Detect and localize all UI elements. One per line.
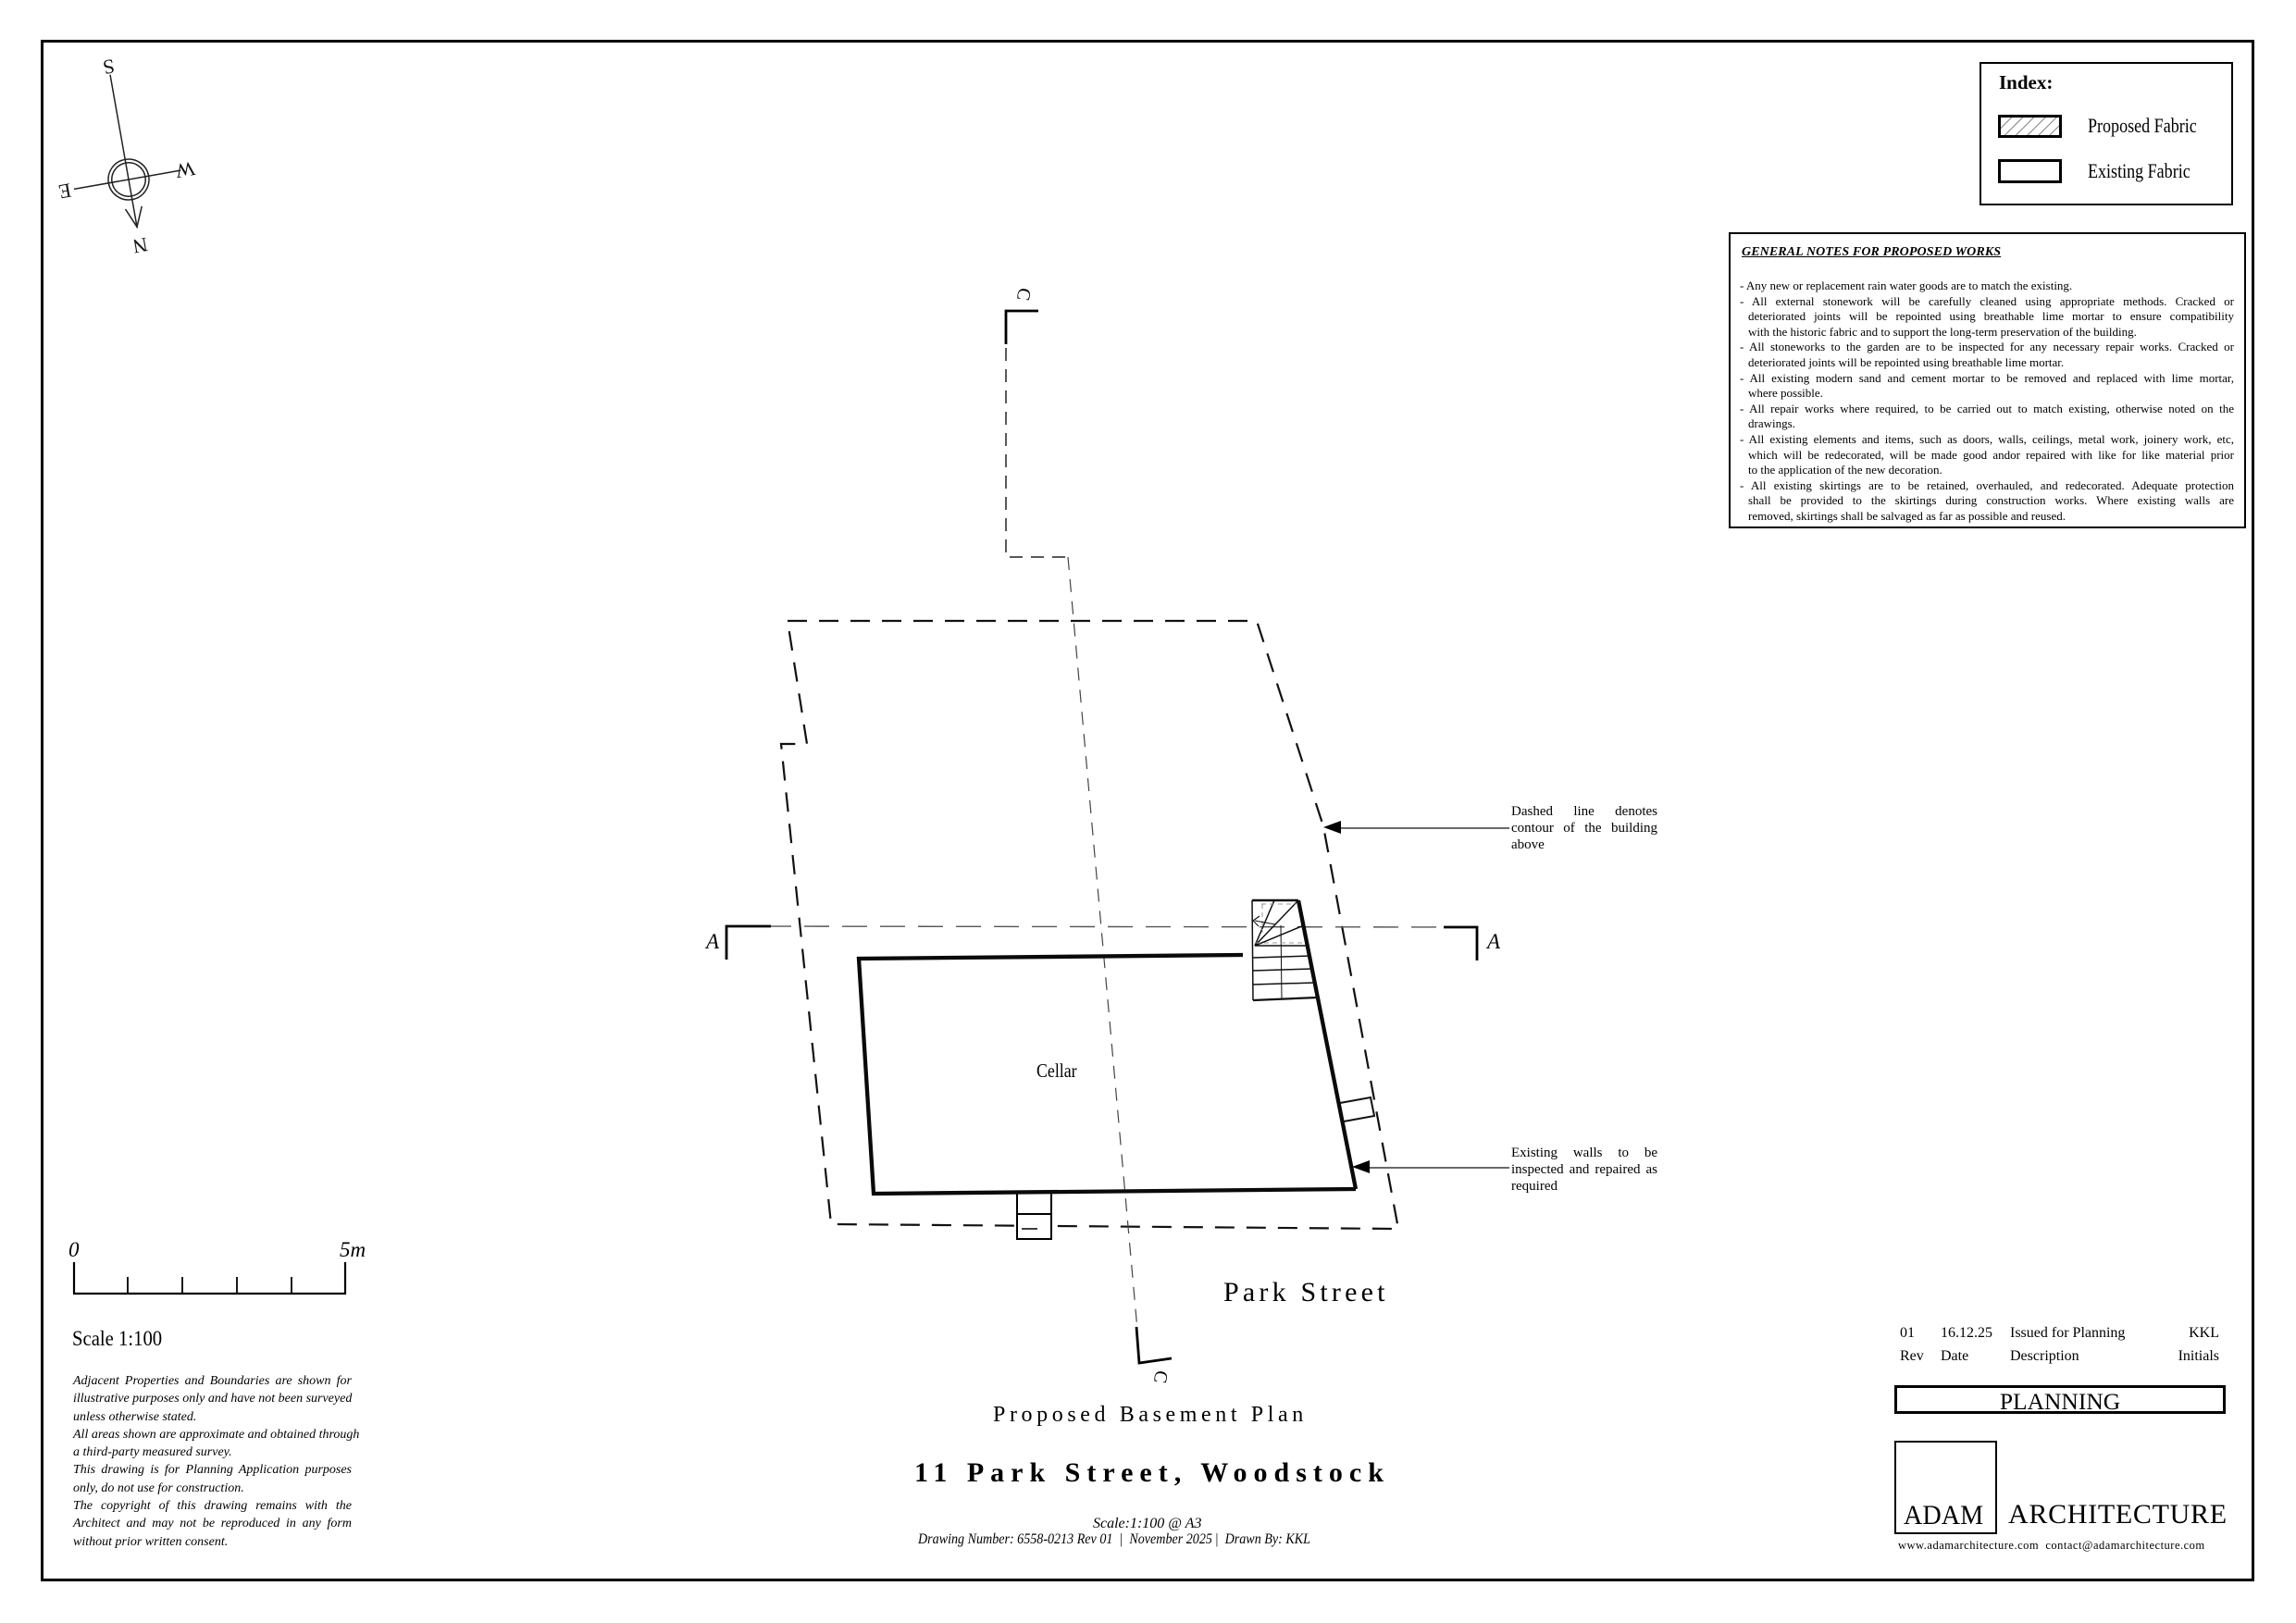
svg-text:C: C xyxy=(1012,287,1035,303)
svg-text:E: E xyxy=(56,179,73,204)
svg-text:S: S xyxy=(101,55,116,80)
svg-text:W: W xyxy=(174,157,197,183)
svg-text:N: N xyxy=(130,233,149,258)
svg-text:A: A xyxy=(704,930,720,953)
svg-text:A: A xyxy=(1485,930,1501,953)
svg-text:C: C xyxy=(1149,1369,1172,1385)
